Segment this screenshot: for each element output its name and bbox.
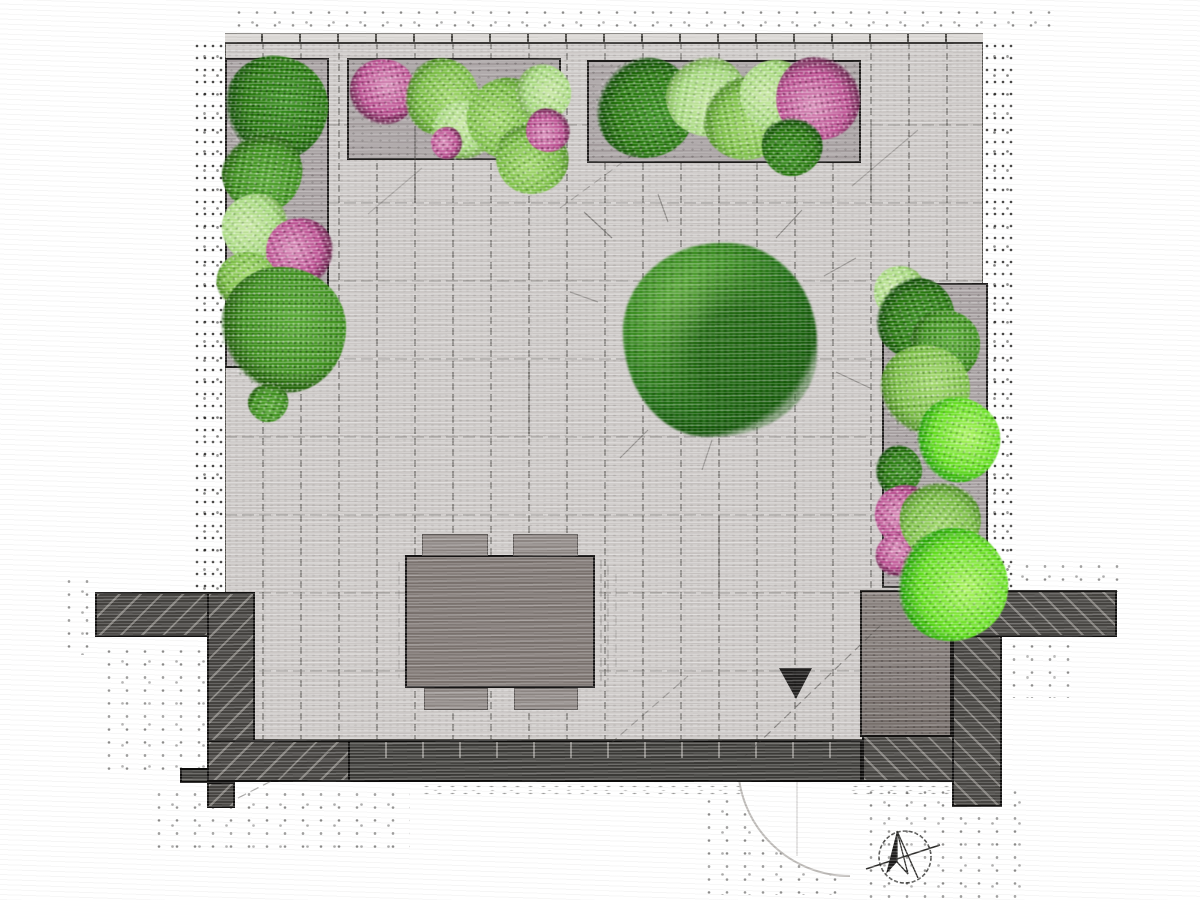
wall-west-stub (207, 782, 235, 808)
speckle-texture (150, 788, 410, 854)
compass-cross-line (866, 845, 940, 869)
compass-needle-open (897, 831, 908, 874)
wall-south-west (207, 740, 350, 782)
top-edge-course (225, 33, 983, 44)
speckle-texture (230, 6, 1060, 32)
garden-plan-canvas (0, 0, 1200, 900)
compass-circle (879, 831, 931, 883)
central-tree-canopy (623, 243, 817, 437)
speckle-texture (60, 575, 98, 655)
speckle-texture (1000, 560, 1120, 592)
speckle-texture (1005, 640, 1075, 698)
chair (513, 534, 578, 556)
chair (424, 688, 488, 710)
speckle-texture (100, 645, 205, 773)
north-arrow-icon (866, 831, 940, 883)
speckle-texture (700, 795, 845, 895)
wall-west-foot (180, 768, 210, 783)
chair (514, 688, 578, 710)
speckle-texture (420, 783, 980, 797)
wall-south (348, 740, 862, 782)
chair (422, 534, 488, 556)
compass-tail-line (897, 831, 918, 878)
compass-needle-filled (886, 831, 897, 874)
wall-joint-ticks (350, 742, 860, 758)
dining-table (405, 555, 595, 688)
